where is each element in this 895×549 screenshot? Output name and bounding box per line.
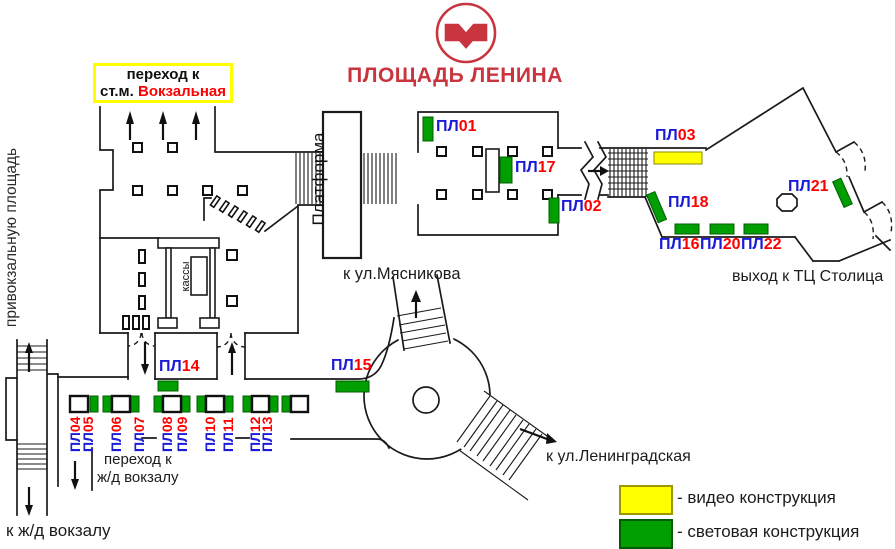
- plaque-pl16: ПЛ16: [659, 237, 700, 253]
- plaque-pl02: ПЛ02: [561, 199, 602, 215]
- plaque-pl22: ПЛ22: [741, 237, 782, 253]
- legend-light-swatch: [619, 519, 673, 549]
- transfer-box-line2: ст.м. Вокзальная: [96, 83, 230, 100]
- rail-transfer-label-1: переход к: [104, 451, 172, 469]
- pl21-light-bar: [833, 178, 853, 207]
- plaque-pl09: ПЛ09: [174, 408, 189, 452]
- station-scheme: ПЛОЩАДЬ ЛЕНИНА переход к ст.м. Вокзальна…: [0, 0, 895, 549]
- legend-light-label: - световая конструкция: [677, 522, 859, 542]
- plaque-pl10: ПЛ10: [202, 408, 217, 452]
- kassy-booth: [191, 257, 207, 295]
- plaque-pl07: ПЛ07: [131, 408, 146, 452]
- plaque-pl20: ПЛ20: [700, 237, 741, 253]
- plaque-pl15: ПЛ15: [331, 358, 372, 374]
- to-myasnikova-label: к ул.Мясникова: [343, 265, 461, 283]
- metro-logo-icon: [437, 4, 495, 62]
- pl20-light-bar: [710, 224, 734, 234]
- pl01-light-bar: [423, 117, 433, 141]
- pl15-light-bar: [336, 381, 369, 392]
- plaque-pl18: ПЛ18: [668, 195, 709, 211]
- transfer-box-line1: переход к: [96, 66, 230, 83]
- exit-stolitsa-label: выход к ТЦ Столица: [732, 268, 883, 286]
- legend-video-swatch: [619, 485, 673, 515]
- turnstiles: [210, 196, 265, 232]
- plaque-pl03: ПЛ03: [655, 128, 696, 144]
- pl02-light-bar: [549, 198, 559, 223]
- plaque-pl06: ПЛ06: [108, 408, 123, 452]
- plaque-pl05: ПЛ05: [80, 408, 95, 452]
- pl14-light-bar: [158, 381, 178, 391]
- to-leningradskaya-label: к ул.Ленинградская: [546, 448, 691, 466]
- plaque-pl08: ПЛ08: [159, 408, 174, 452]
- pl03-video-bar: [654, 152, 702, 164]
- pl17-light-bar: [500, 157, 512, 183]
- transfer-box: переход к ст.м. Вокзальная: [93, 63, 233, 103]
- pl22-light-bar: [744, 224, 768, 234]
- platform-label: Платформа: [309, 109, 331, 249]
- plaque-pl17: ПЛ17: [515, 160, 556, 176]
- neck-myasnikova: [392, 295, 455, 358]
- exit-station-square-label: выход на привокзальную площадь: [0, 130, 22, 345]
- plaque-pl14: ПЛ14: [159, 359, 200, 375]
- rotunda-inner-column: [413, 387, 439, 413]
- pl16-light-bar: [675, 224, 699, 234]
- ticket-office-label: кассы: [180, 258, 193, 295]
- info-booth: [486, 149, 499, 192]
- plaque-pl01: ПЛ01: [436, 119, 477, 135]
- plaque-pl13: ПЛ13: [259, 408, 274, 452]
- pl13-light-bar: [282, 396, 290, 412]
- station-title: ПЛОЩАДЬ ЛЕНИНА: [340, 64, 570, 88]
- transfer-station-name: Вокзальная: [138, 83, 226, 100]
- legend-video-label: - видео конструкция: [677, 488, 836, 508]
- plaque-pl11: ПЛ11: [220, 408, 235, 452]
- rail-transfer-label-2: ж/д вокзалу: [97, 469, 178, 487]
- plaque-pl21: ПЛ21: [788, 179, 829, 195]
- to-rail-label: к ж/д вокзалу: [6, 522, 111, 540]
